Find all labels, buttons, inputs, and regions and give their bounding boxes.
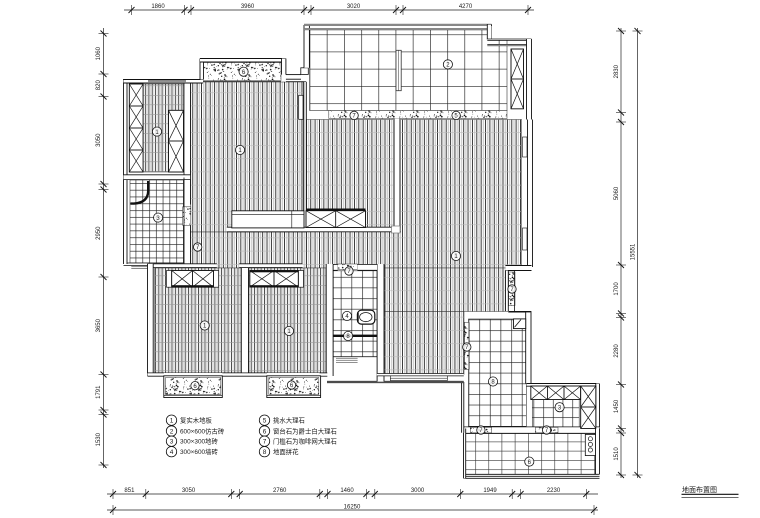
svg-text:地面布置图: 地面布置图 <box>682 485 717 494</box>
svg-text:1450: 1450 <box>614 399 620 413</box>
svg-text:1949: 1949 <box>483 488 497 494</box>
svg-text:7: 7 <box>263 439 267 446</box>
svg-text:2760: 2760 <box>273 488 287 494</box>
svg-text:300×600墙砖: 300×600墙砖 <box>180 447 218 456</box>
svg-text:851: 851 <box>124 488 135 494</box>
svg-text:2280: 2280 <box>614 344 620 358</box>
svg-text:4: 4 <box>170 449 174 456</box>
svg-text:15551: 15551 <box>631 243 637 260</box>
svg-text:3050: 3050 <box>182 488 196 494</box>
svg-text:4270: 4270 <box>459 4 473 10</box>
svg-text:1510: 1510 <box>614 447 620 461</box>
svg-text:8: 8 <box>263 449 267 456</box>
svg-text:1060: 1060 <box>96 46 102 60</box>
svg-text:2230: 2230 <box>547 488 561 494</box>
svg-text:门槛石为咖啡网大理石: 门槛石为咖啡网大理石 <box>273 437 337 446</box>
svg-text:1460: 1460 <box>340 488 354 494</box>
svg-text:3000: 3000 <box>411 488 425 494</box>
svg-text:1700: 1700 <box>614 282 620 296</box>
svg-text:3650: 3650 <box>96 318 102 332</box>
svg-text:5060: 5060 <box>614 186 620 200</box>
svg-text:6: 6 <box>263 428 267 435</box>
svg-text:2830: 2830 <box>614 64 620 78</box>
svg-text:1: 1 <box>170 418 174 425</box>
svg-text:3050: 3050 <box>96 133 102 147</box>
svg-text:复实木地板: 复实木地板 <box>180 416 213 425</box>
svg-text:820: 820 <box>96 80 102 91</box>
svg-text:1791: 1791 <box>96 385 102 399</box>
svg-text:600×600仿古砖: 600×600仿古砖 <box>180 426 225 435</box>
svg-text:地面拼花: 地面拼花 <box>273 447 299 456</box>
svg-text:2: 2 <box>170 428 174 435</box>
svg-text:5: 5 <box>263 418 267 425</box>
svg-text:1860: 1860 <box>151 4 165 10</box>
svg-text:1530: 1530 <box>96 432 102 446</box>
svg-text:窗台石为爵士白大理石: 窗台石为爵士白大理石 <box>273 426 337 435</box>
svg-text:2950: 2950 <box>96 226 102 240</box>
svg-text:挑水大理石: 挑水大理石 <box>273 416 305 425</box>
svg-text:16250: 16250 <box>344 505 361 511</box>
svg-text:3020: 3020 <box>347 4 361 10</box>
svg-text:300×300地砖: 300×300地砖 <box>180 437 218 446</box>
svg-text:3: 3 <box>170 439 174 446</box>
svg-text:3960: 3960 <box>241 4 255 10</box>
